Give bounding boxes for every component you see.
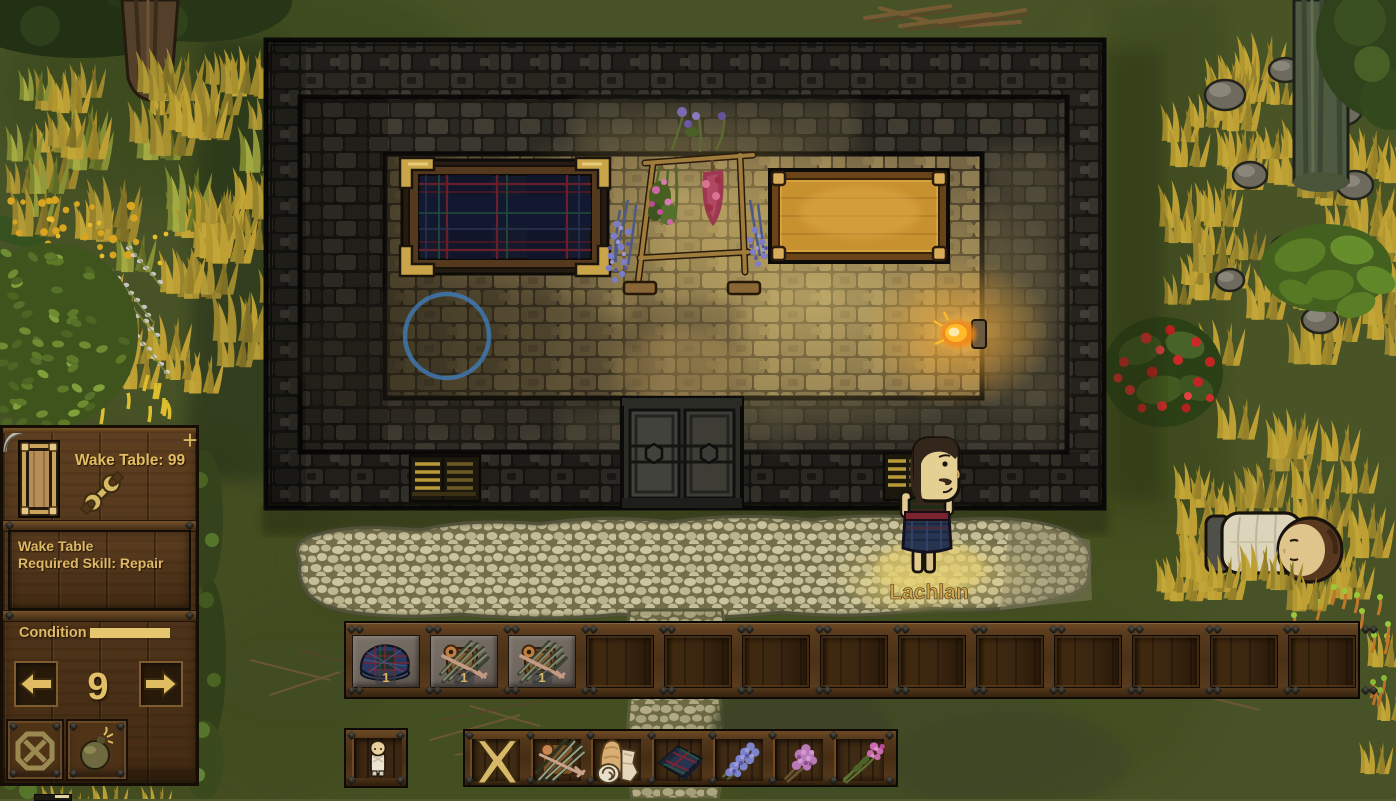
svg-text:Lachlan: Lachlan	[889, 581, 968, 604]
